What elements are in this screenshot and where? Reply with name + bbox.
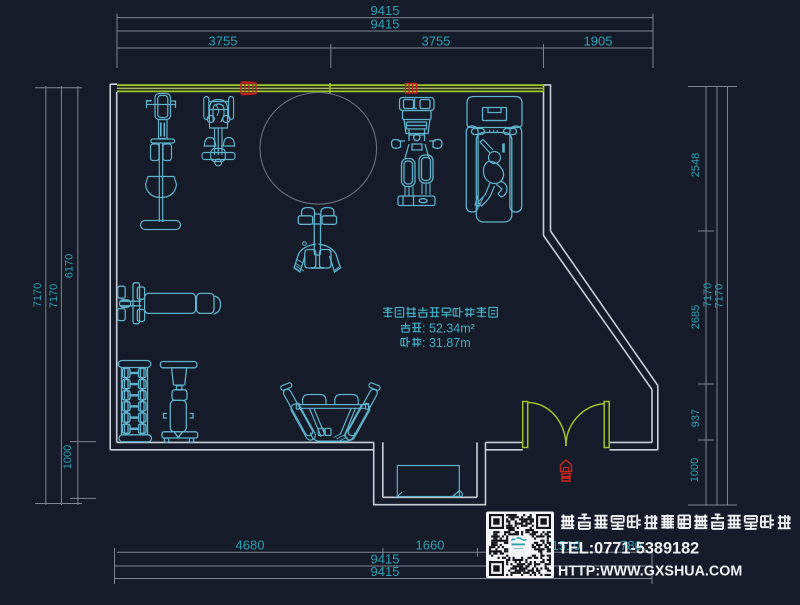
svg-text:7170: 7170 <box>702 283 714 307</box>
svg-text:1660: 1660 <box>416 538 445 553</box>
svg-text:7170: 7170 <box>32 283 44 307</box>
svg-text:9415: 9415 <box>371 17 400 32</box>
svg-text:3755: 3755 <box>209 34 238 49</box>
svg-text:1000: 1000 <box>62 445 74 469</box>
svg-text:9415: 9415 <box>371 564 400 579</box>
svg-text:1905: 1905 <box>584 34 613 49</box>
svg-text:: 31.87m: : 31.87m <box>422 336 471 350</box>
svg-text:4680: 4680 <box>236 538 265 553</box>
svg-text:2548: 2548 <box>690 153 702 177</box>
svg-text:2685: 2685 <box>690 305 702 329</box>
svg-text:: 52.34m²: : 52.34m² <box>422 322 475 336</box>
svg-text:TEL:0771-5389182: TEL:0771-5389182 <box>558 540 699 558</box>
svg-text:HTTP:WWW.GXSHUA.COM: HTTP:WWW.GXSHUA.COM <box>558 564 742 580</box>
svg-text:3755: 3755 <box>422 34 451 49</box>
svg-text:7170: 7170 <box>48 284 60 308</box>
svg-text:1000: 1000 <box>689 458 701 482</box>
svg-text:937: 937 <box>690 409 702 427</box>
svg-text:6170: 6170 <box>64 254 76 278</box>
svg-text:7170: 7170 <box>714 284 726 308</box>
